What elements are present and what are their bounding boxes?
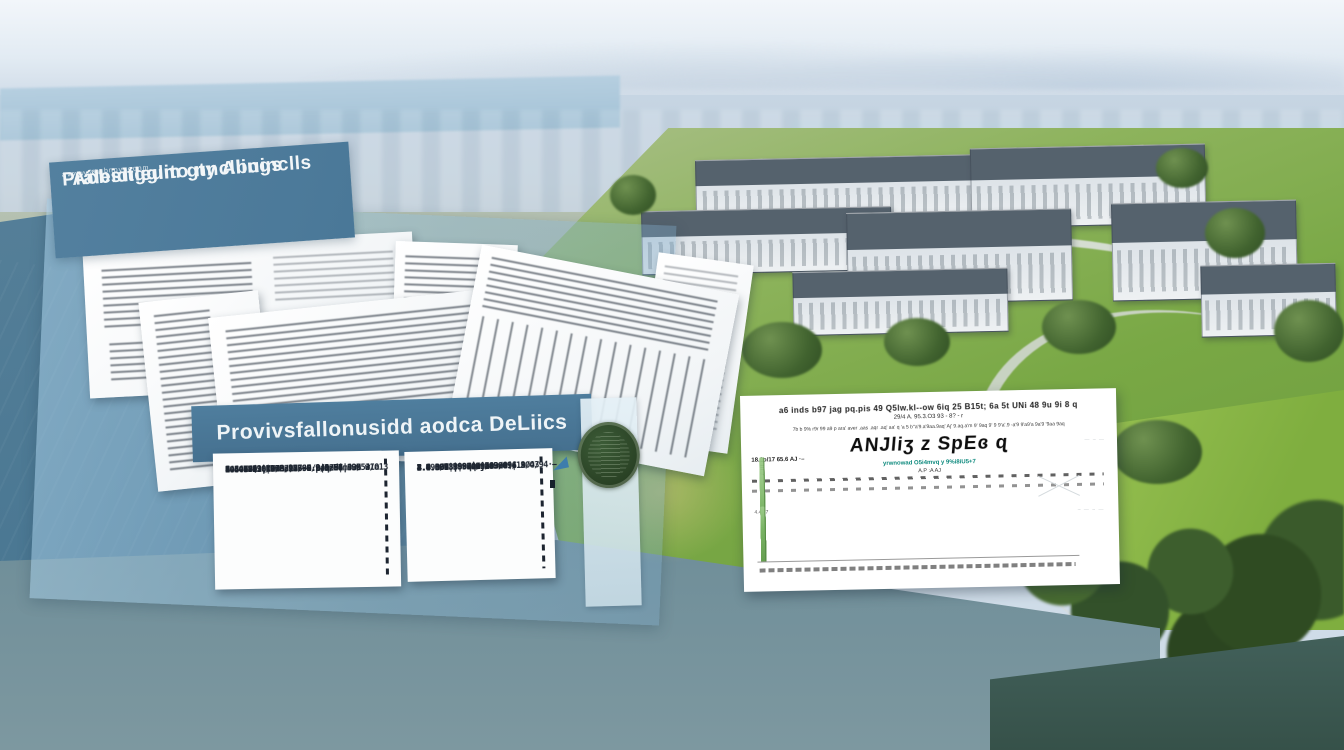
provisions-table-left: 54.4.4O9 1OB63 N7 8.9;1 5O4.3O1 ( Q/V1B … xyxy=(213,450,401,589)
provisions-table-right: 2.4.O34 99.9O9 28.98 ▪3.49 O98 8.4.3 1O9… xyxy=(404,448,555,582)
chart-watermark-dashes: — – — xyxy=(1084,436,1105,442)
aerial-composite-image: Práleidileum gty Abuinclls , . . , p.qbn… xyxy=(0,0,1344,750)
table-rows: 54.4.4O9 1OB63 N7 8.9;1 5O4.3O1 ( Q/V1B … xyxy=(225,461,389,464)
tree xyxy=(742,322,822,378)
bar xyxy=(760,506,766,561)
report-chart-card: a6 inds b97 jag pq.pis 49 Q5lw.kl--ow 6i… xyxy=(740,388,1120,592)
tree xyxy=(1042,300,1116,354)
provisions-title: Provivsfallonusidd aodca DeLiics xyxy=(216,410,568,445)
bar-chart xyxy=(759,449,1073,562)
chart-watermark-dashes: – — – — xyxy=(1078,506,1105,513)
table-row: 19.44.4.8 xyxy=(225,463,266,478)
chart-x-tick-labels xyxy=(760,562,1076,573)
tree xyxy=(884,318,950,366)
table-row: 4 7.O/V3 | Zawnwawa ( xyxy=(417,459,512,475)
table-rows: 2.4.O34 99.9O9 28.98 ▪3.49 O98 8.4.3 1O9… xyxy=(417,458,543,461)
table-divider-dashes xyxy=(539,456,545,568)
banner-title-line2: Aobsitgglito nncllings xyxy=(72,154,284,191)
small-mark xyxy=(550,480,555,488)
tree xyxy=(1274,300,1344,362)
document-text-lines xyxy=(273,250,395,300)
tree xyxy=(610,175,656,215)
table-divider-dashes xyxy=(384,459,389,577)
tree xyxy=(1205,208,1265,258)
tree xyxy=(1156,148,1208,188)
seal-strip xyxy=(580,397,641,606)
green-seal-icon xyxy=(577,421,641,489)
